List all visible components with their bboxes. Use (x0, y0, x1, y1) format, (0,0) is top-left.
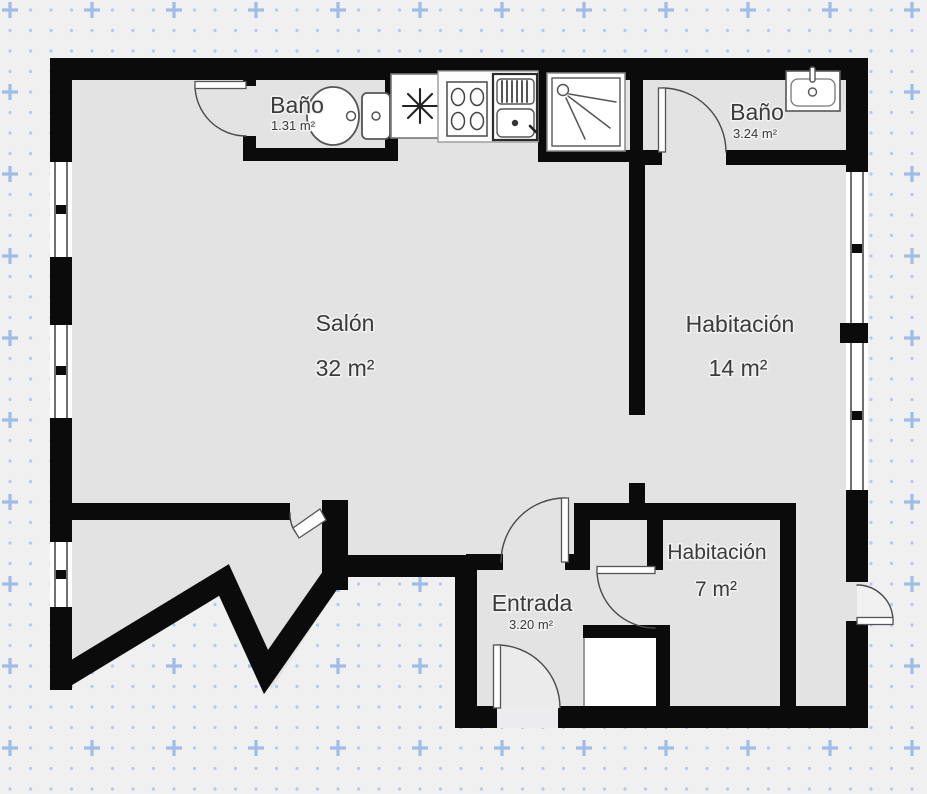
room-alcove[interactable] (796, 522, 844, 704)
room-bano-1[interactable] (256, 82, 383, 146)
room-bano-2[interactable] (645, 82, 845, 148)
room-habitacion-7[interactable] (663, 522, 778, 702)
shower-icon[interactable] (547, 73, 625, 151)
window-left-1[interactable] (50, 162, 72, 257)
floor-plan-canvas[interactable]: Baño 1.31 m² Salón 32 m² Baño 3.24 m² Ha… (0, 0, 927, 794)
window-left-2[interactable] (50, 325, 72, 418)
window-left-3[interactable] (50, 542, 72, 607)
room-habitacion-14[interactable] (645, 167, 845, 501)
room-entrada[interactable] (479, 572, 645, 704)
floor-plan-stage: Baño 1.31 m² Salón 32 m² Baño 3.24 m² Ha… (0, 0, 927, 794)
